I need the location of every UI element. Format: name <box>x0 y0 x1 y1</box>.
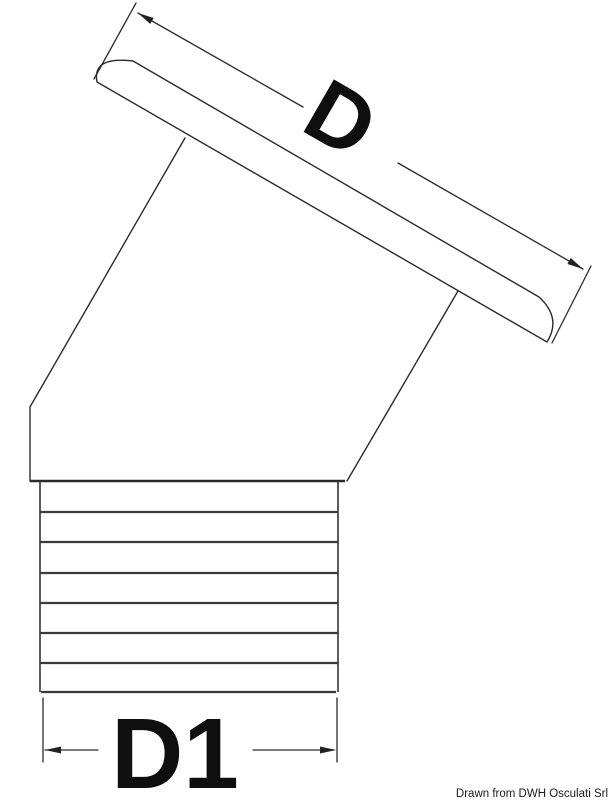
dim-d1-arrow-right-icon <box>320 747 336 754</box>
dimension-d1: D1 <box>43 698 337 800</box>
dim-d-line-segment-right <box>398 163 583 269</box>
dim-d-line-segment-left <box>138 13 303 107</box>
body-right-edge <box>347 291 458 481</box>
dim-d-extension-line-left <box>94 3 136 79</box>
dim-d1-label: D1 <box>111 698 239 800</box>
dim-d-arrow-left-icon <box>138 13 154 24</box>
barb-rib-lines <box>40 512 338 663</box>
dim-d-extension-line-right <box>552 266 591 343</box>
body-left-edge <box>30 138 185 481</box>
drawing-stage: D D1 Drawn from DWH Osculati <box>0 0 611 800</box>
dim-d1-arrow-left-icon <box>45 747 61 754</box>
dim-d-label: D <box>289 60 394 178</box>
body-cone <box>30 138 458 481</box>
dim-d-arrow-right-icon <box>567 258 583 269</box>
dimension-d: D <box>94 3 591 343</box>
barb-section <box>40 481 338 692</box>
technical-drawing-canvas: D D1 Drawn from DWH Osculati <box>0 0 611 800</box>
credit-text: Drawn from DWH Osculati Srl <box>456 788 608 800</box>
